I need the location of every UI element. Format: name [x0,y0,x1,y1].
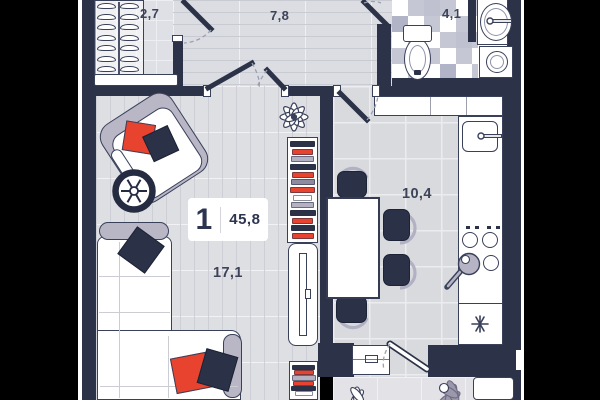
hanger [97,24,139,30]
hanger-wing [120,45,139,51]
balcony-wall-right-chunk [428,345,518,377]
hanger [97,3,139,9]
book-spine [291,225,315,231]
sofa-body-join [99,332,169,398]
book-spine [292,172,314,178]
sofa-seam [119,242,120,398]
bathroom-niche-divider [468,0,476,42]
right-exterior-highlight [521,0,524,400]
bathroom-area-label: 4,1 [442,6,461,21]
book-spine [293,195,312,201]
bookshelf-bottom [289,361,318,400]
living-room-area-label: 17,1 [213,265,243,281]
balcony-window [516,350,524,370]
kitchen-sink [462,121,498,152]
hanger [97,56,139,62]
hallway-area-label: 7,8 [270,8,289,23]
bathroom-bottom-wall [392,78,507,96]
cabinet-divider [466,97,467,115]
book-spine [295,391,313,396]
stove-knob [475,226,479,229]
book-spine [290,187,315,193]
double-door-post-left [203,85,211,97]
stove-knob [466,226,470,229]
dining-chair [337,171,367,198]
hanger-wing [97,14,116,20]
toilet-bowl-inner [409,45,426,73]
tv-mount [305,289,311,299]
hanger-wing [97,56,116,62]
bathroom-sink-inner [484,8,508,36]
book-spine [291,202,314,208]
stove-knob [487,226,491,229]
dining-chair [336,296,367,323]
book-spine [293,381,314,386]
balcony-wall-left-chunk [318,343,354,377]
hanger-wing [97,3,116,9]
hanger-wing [120,66,139,72]
hanger [97,35,139,41]
kitchen-door-post-left [333,85,341,97]
hanger-wing [120,24,139,30]
hanger-wing [120,3,139,9]
stove-burner [483,255,499,271]
book-spine [291,179,315,185]
kitchen-area-label: 10,4 [402,186,432,202]
unit-rooms-count: 1 [196,205,213,235]
cabinet-divider [430,97,431,115]
balcony-table [473,377,514,400]
bookshelf-top [287,137,318,243]
sofa-seam [99,276,170,277]
left-exterior-highlight [78,0,82,400]
double-door-post-right [281,85,289,97]
bathroom-tile [424,0,440,16]
book-spine [290,210,316,216]
wardrobe-door-post [172,35,183,42]
hanger-wing [97,66,116,72]
dining-chair [383,254,410,286]
sofa-seam [99,312,170,313]
book-spine [292,233,314,239]
balcony-door-line [353,359,389,360]
book-spine [290,141,315,147]
unit-total-area: 45,8 [229,211,260,228]
hanger [97,14,139,20]
hanger-wing [120,14,139,20]
unit-info-card: 1 45,8 [188,198,268,241]
book-spine [292,149,313,155]
book-spine [292,218,313,224]
sofa-seam [168,336,169,398]
wardrobe-area-label: 2,7 [140,6,159,21]
stove-burner [462,232,478,248]
dining-chair [383,209,410,241]
stove-burner [482,232,498,248]
stove-knob [496,226,500,229]
book-spine [291,156,314,162]
kitchen-upper-cabinet [374,96,503,116]
hanger-wing [120,35,139,41]
fridge [458,303,503,345]
toilet-flush-button [414,70,421,75]
hanger [97,66,139,72]
book-spine [290,164,316,170]
hanger-wing [97,45,116,51]
dining-table [326,197,380,299]
toilet-tank [403,25,432,42]
hanger-wing [120,56,139,62]
clothes-hangers [97,3,141,79]
washing-machine-door-inner [490,55,504,69]
hanger [97,45,139,51]
floor-plan: 2,7 7,8 4,1 10,4 17,1 1 45,8 [0,0,600,400]
unit-card-divider [220,207,221,233]
wardrobe-bench [94,74,178,86]
hanger-wing [97,24,116,30]
bathroom-left-wall [377,24,391,86]
book-spine [292,375,316,380]
hanger-wing [97,35,116,41]
